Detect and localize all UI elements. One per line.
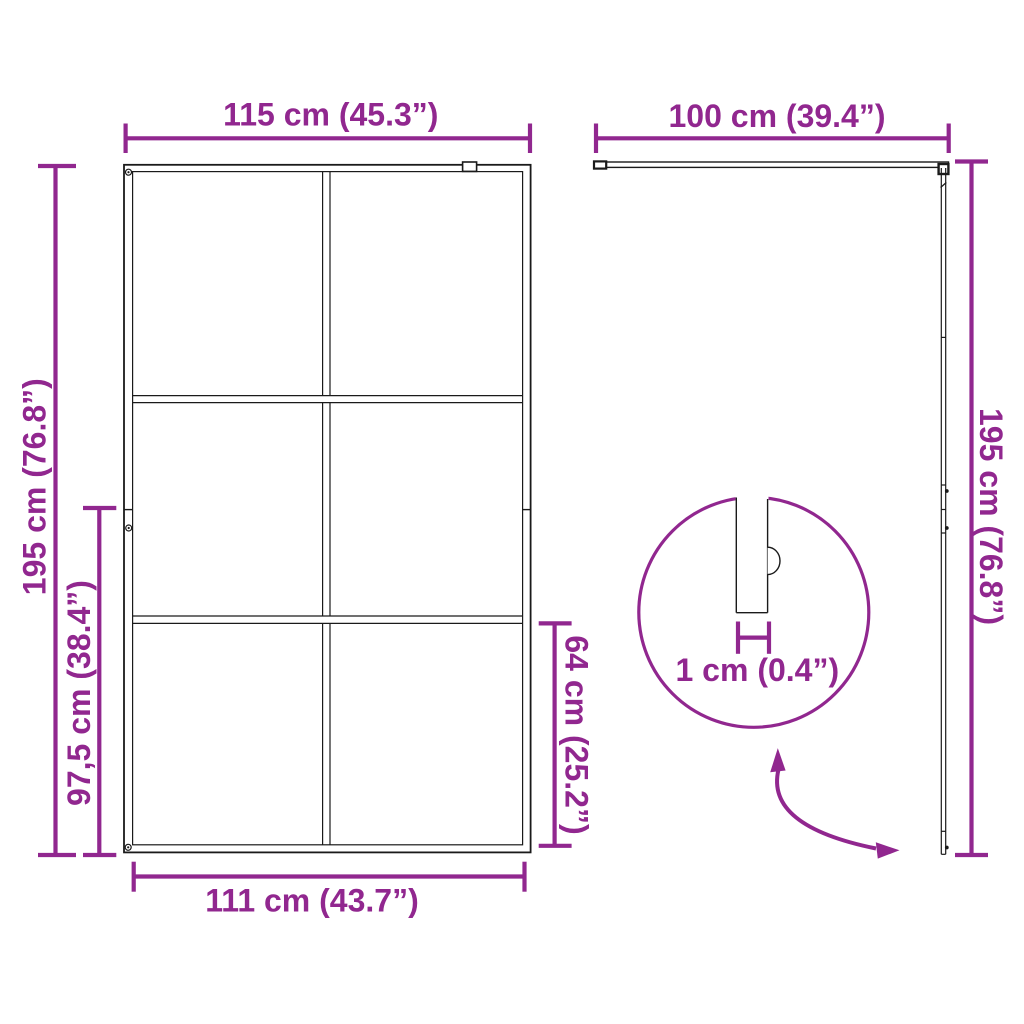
svg-text:1 cm (0.4”): 1 cm (0.4”) [675, 652, 839, 688]
svg-text:64 cm (25.2”): 64 cm (25.2”) [558, 635, 594, 834]
svg-text:195 cm (76.8”): 195 cm (76.8”) [973, 408, 1009, 625]
svg-text:111 cm (43.7”): 111 cm (43.7”) [205, 883, 418, 919]
svg-text:100 cm (39.4”): 100 cm (39.4”) [668, 98, 885, 134]
svg-text:97,5 cm (38.4”): 97,5 cm (38.4”) [61, 580, 97, 806]
svg-text:115 cm (45.3”): 115 cm (45.3”) [223, 97, 438, 133]
svg-text:195 cm (76.8”): 195 cm (76.8”) [17, 378, 53, 595]
